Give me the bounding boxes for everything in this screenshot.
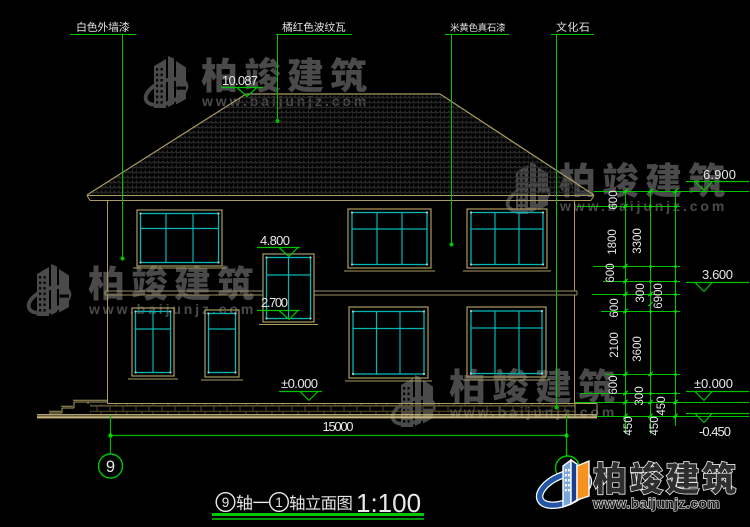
svg-text:3600: 3600 [632, 336, 644, 362]
svg-text:3.600: 3.600 [702, 267, 733, 282]
svg-text:www.baijunjz.com: www.baijunjz.com [88, 301, 256, 317]
svg-text:www.baijunjz.com: www.baijunjz.com [592, 495, 720, 511]
svg-text:±0.000: ±0.000 [281, 376, 318, 391]
svg-text:600: 600 [605, 263, 617, 282]
svg-text:2.700: 2.700 [261, 295, 288, 310]
svg-text:6900: 6900 [653, 283, 665, 309]
svg-text:600: 600 [608, 190, 620, 209]
svg-text:1: 1 [275, 495, 283, 510]
svg-text:15000: 15000 [323, 419, 354, 434]
svg-text:4.800: 4.800 [260, 233, 290, 248]
svg-text:±0.000: ±0.000 [694, 376, 733, 391]
svg-text:3300: 3300 [632, 228, 644, 254]
svg-text:300: 300 [634, 386, 646, 405]
svg-text:-0.450: -0.450 [699, 424, 731, 439]
svg-text:450: 450 [656, 396, 668, 415]
svg-text:9: 9 [222, 495, 230, 510]
svg-text:1800: 1800 [607, 229, 619, 255]
svg-text:9: 9 [106, 458, 115, 476]
svg-text:600: 600 [608, 375, 620, 394]
svg-text:300: 300 [635, 283, 647, 302]
svg-text:6.900: 6.900 [703, 167, 736, 182]
svg-text:450: 450 [649, 416, 661, 435]
svg-text:2100: 2100 [609, 332, 621, 358]
svg-text:450: 450 [623, 416, 635, 435]
svg-text:10.087: 10.087 [222, 73, 258, 88]
svg-text:600: 600 [609, 298, 621, 317]
